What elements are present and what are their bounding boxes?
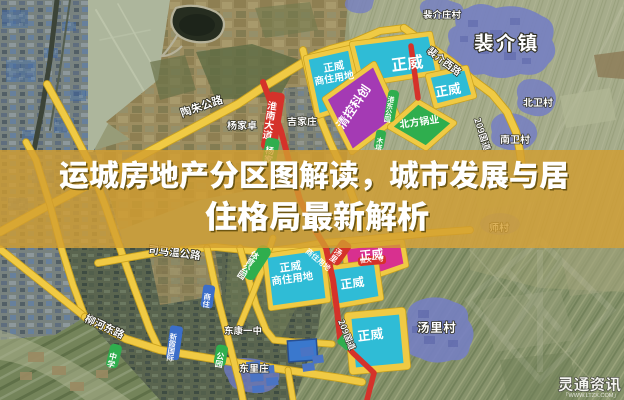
svg-text:「WWW.LTZX.COM」: 「WWW.LTZX.COM」	[563, 392, 619, 399]
